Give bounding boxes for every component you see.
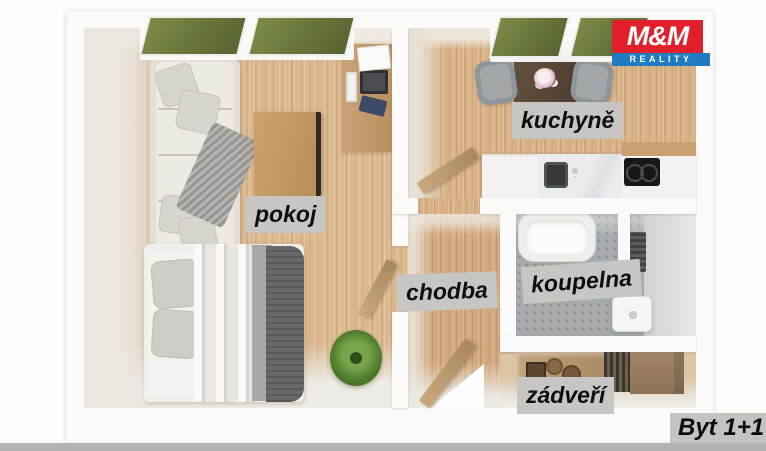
logo-mm-icon: M&M — [612, 20, 703, 53]
bed-pillow — [150, 258, 200, 310]
potted-plant — [330, 330, 382, 386]
room-label-kuchyne: kuchyně — [512, 102, 623, 139]
washing-machine — [612, 296, 652, 332]
bed-duvet — [194, 244, 260, 402]
wall — [500, 214, 516, 352]
chair — [569, 57, 615, 106]
window-pokoj — [140, 12, 354, 60]
logo-reality-text: REALITY — [612, 53, 710, 66]
window-pane-grass — [247, 16, 355, 56]
basket — [546, 358, 563, 375]
cooktop — [624, 158, 660, 186]
chair — [473, 57, 519, 106]
laptop — [360, 70, 388, 94]
bed-dark-blanket — [266, 246, 304, 402]
papers — [357, 44, 391, 71]
counter-wood-strip — [622, 142, 696, 156]
window-pane-grass — [139, 16, 247, 56]
floorplan-image: pokoj kuchyně chodba koupelna zádveří By… — [0, 0, 766, 451]
shoe-cabinet — [630, 352, 684, 394]
bottom-bar — [0, 443, 766, 451]
room-label-pokoj: pokoj — [246, 196, 325, 233]
wall — [480, 198, 696, 214]
window-pane-grass — [489, 16, 570, 58]
bed-pillow — [150, 308, 199, 359]
mm-reality-logo: M&M REALITY — [612, 20, 710, 66]
wall — [500, 336, 696, 352]
wall — [392, 198, 418, 214]
bathtub — [518, 212, 596, 262]
faucet — [572, 168, 578, 174]
room-label-chodba: chodba — [396, 271, 497, 311]
room-chodba-floor — [408, 214, 500, 408]
doorway-kitchen — [418, 198, 480, 214]
flower-vase — [534, 68, 556, 88]
coffee-table — [254, 112, 321, 196]
wall — [392, 312, 408, 408]
sink — [544, 162, 568, 188]
apartment-type-badge: Byt 1+1 — [670, 413, 766, 443]
room-label-zadveri: zádveří — [517, 377, 614, 414]
keyboard — [346, 72, 357, 102]
